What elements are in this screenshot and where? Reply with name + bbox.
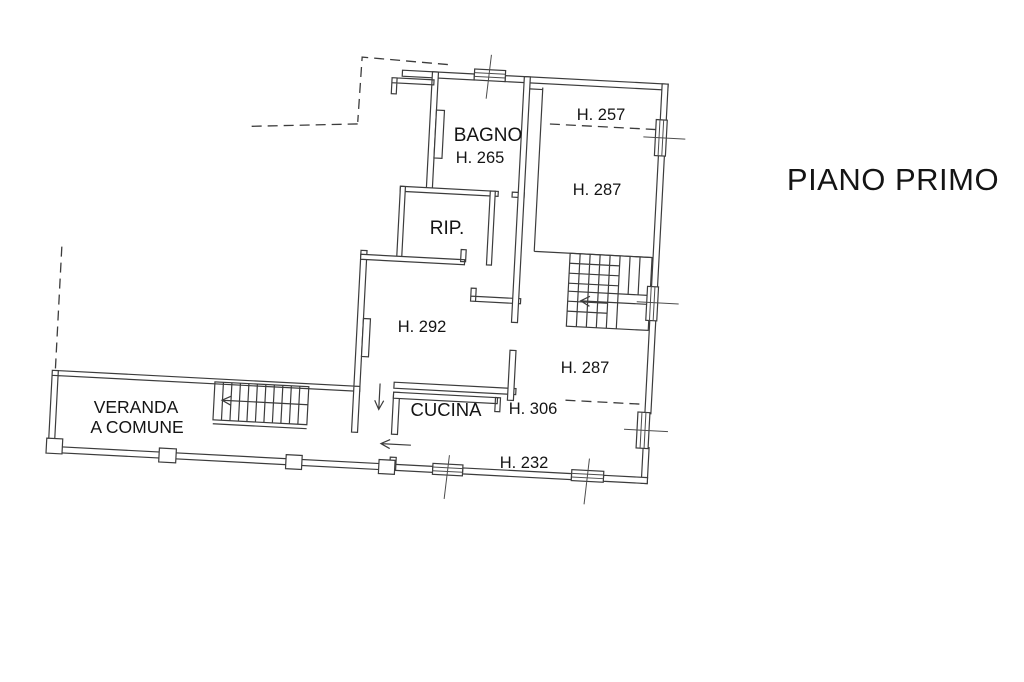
room-height-232: H. 232 [500, 454, 549, 472]
room-label-rip: RIP. [430, 218, 465, 239]
tick-bottom-left [444, 455, 449, 499]
page-title: PIANO PRIMO [787, 162, 999, 197]
room-height-257: H. 257 [577, 106, 626, 124]
h306-divider-dashed [565, 400, 641, 404]
bagno-left-wall [386, 70, 438, 192]
h257-divider-dashed [550, 124, 660, 130]
room-label-veranda-line2: A COMUNE [90, 417, 183, 437]
bagno-bottom-wall [400, 186, 524, 197]
veranda-stairs [213, 382, 309, 429]
entry-down-arrow [374, 383, 384, 409]
room-label-cucina: CUCINA [411, 399, 483, 420]
terrace-dashed-line [250, 118, 357, 132]
room-height-306: H. 306 [509, 400, 558, 418]
top-exterior-wall [402, 70, 668, 90]
h292-top-wall [361, 244, 467, 264]
entry-left-arrow [381, 439, 411, 450]
floor-plan-drawing: BAGNO H. 265 H. 257 H. 287 RIP. H. 292 H… [0, 0, 1024, 682]
room-height-287-upper: H. 287 [573, 181, 622, 199]
floor-plan-page: BAGNO H. 265 H. 257 H. 287 RIP. H. 292 H… [0, 0, 1024, 682]
bottom-exterior-wall [48, 446, 647, 483]
left-dashed-boundary [55, 247, 61, 371]
plan-geometry [45, 33, 691, 511]
room-height-292: H. 292 [398, 318, 447, 336]
room-height-bagno: H. 265 [456, 149, 505, 167]
vestibule-walls [350, 250, 407, 470]
right-middle-window [646, 286, 659, 321]
room-label-veranda-line1: VERANDA [94, 397, 179, 417]
room-label-bagno: BAGNO [454, 125, 523, 146]
main-stairs [566, 253, 652, 330]
room-height-287-lower: H. 287 [561, 359, 610, 377]
